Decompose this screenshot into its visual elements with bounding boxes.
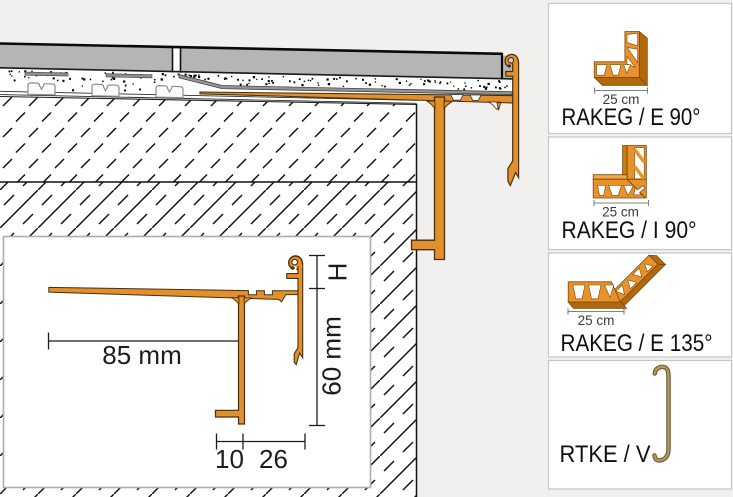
svg-text:H: H <box>322 263 352 282</box>
svg-text:26: 26 <box>259 444 288 474</box>
svg-text:25 cm: 25 cm <box>578 313 615 328</box>
svg-text:85 mm: 85 mm <box>102 340 181 370</box>
svg-text:10: 10 <box>215 444 244 474</box>
svg-text:RTKE / V: RTKE / V <box>560 441 651 468</box>
svg-text:RAKEG / I 90°: RAKEG / I 90° <box>562 217 697 244</box>
svg-text:RAKEG / E 135°: RAKEG / E 135° <box>561 330 713 357</box>
svg-text:RAKEG / E 90°: RAKEG / E 90° <box>562 104 701 131</box>
svg-text:60 mm: 60 mm <box>317 316 347 395</box>
